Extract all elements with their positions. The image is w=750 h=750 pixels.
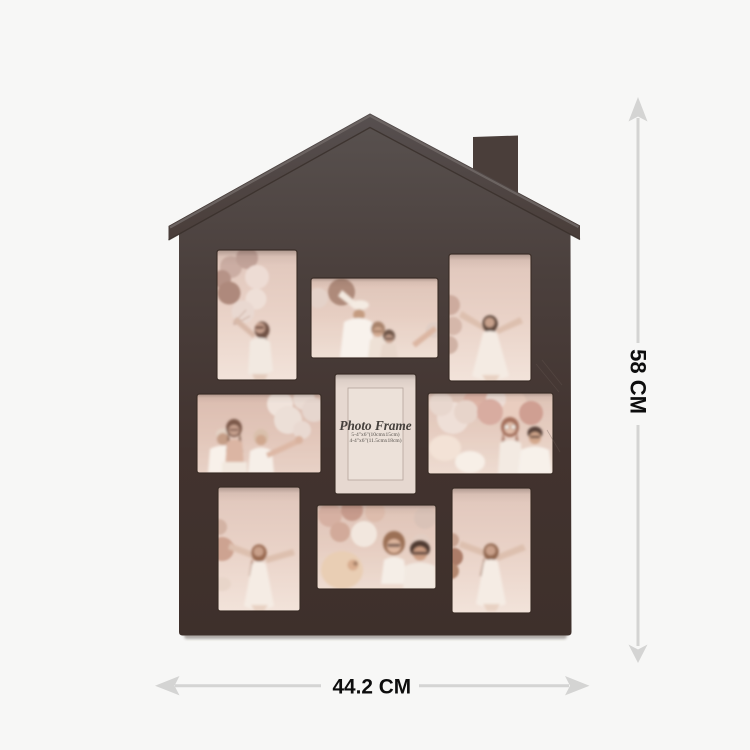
svg-text:58 CM: 58 CM bbox=[626, 349, 651, 414]
svg-text:44.2 CM: 44.2 CM bbox=[332, 676, 411, 699]
